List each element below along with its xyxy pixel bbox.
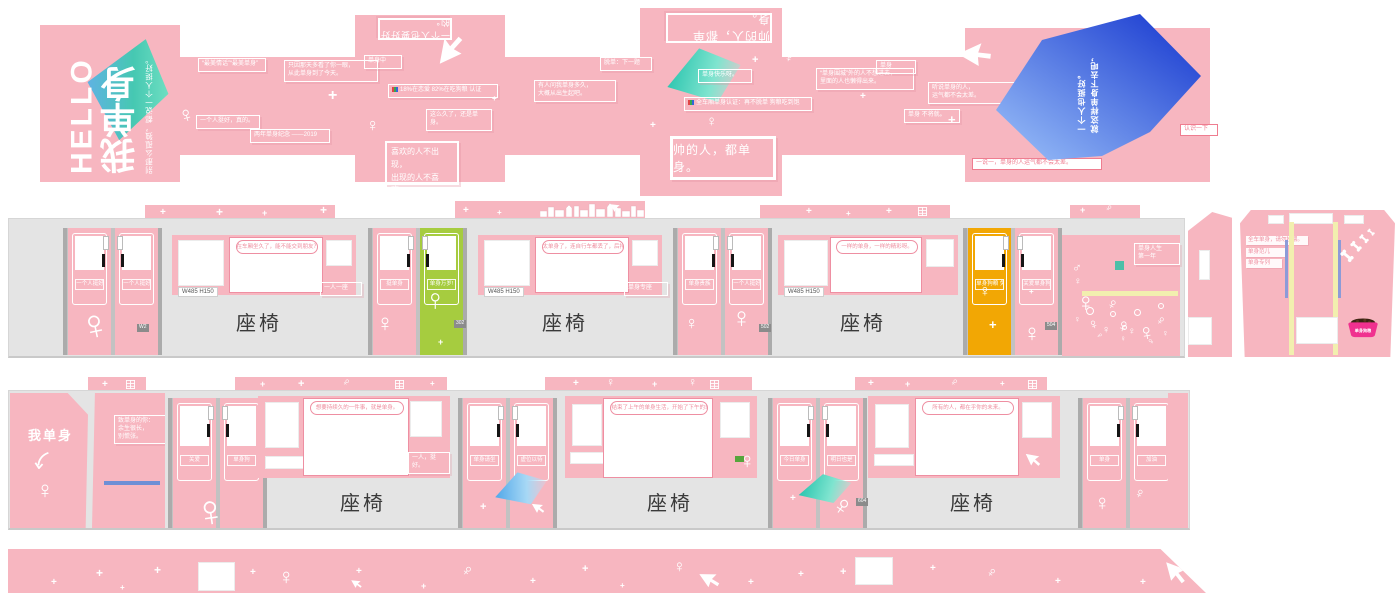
plus-icon: +: [250, 568, 256, 578]
cursor-icon: [1165, 556, 1195, 588]
plus-icon: +: [840, 567, 846, 578]
plus-icon: +: [620, 582, 625, 590]
plus-icon: +: [421, 582, 426, 591]
female-icon: ♀: [278, 566, 295, 588]
campaign-name: 我单身: [103, 32, 139, 174]
plus-icon: +: [582, 564, 588, 575]
plus-icon: +: [930, 564, 936, 574]
plus-icon: +: [51, 578, 57, 588]
female-icon: ♀: [457, 560, 478, 581]
cursor-icon: [351, 575, 367, 591]
plus-icon: +: [530, 577, 536, 587]
panel-rect: [198, 562, 235, 591]
plus-icon: +: [154, 564, 161, 576]
campaign-logo: 别那么孤独，都说一个人挺好。 我单身 HELLO: [50, 32, 172, 174]
female-icon: ♀: [673, 558, 686, 575]
plus-icon: +: [798, 570, 804, 580]
plus-icon: +: [1140, 578, 1146, 588]
female-icon: ♀: [982, 563, 1000, 582]
cursor-icon: [698, 563, 727, 592]
plus-icon: +: [96, 567, 103, 579]
plus-icon: +: [120, 584, 125, 592]
campaign-hello: HELLO: [68, 32, 98, 174]
plus-icon: +: [748, 578, 754, 588]
panel-rect: [855, 557, 893, 585]
plus-icon: +: [1055, 577, 1061, 587]
campaign-tagline: 别那么孤独，都说一个人挺好。: [144, 32, 155, 174]
bottom-strip: +++++♀++♀+++♀++++♀++: [8, 549, 1206, 593]
layout-canvas: 别那么孤独，都说一个人挺好。 我单身 HELLO “最美情话”“最美单身”只因那…: [0, 0, 1398, 600]
bottom-strip-band: +++++♀++♀+++♀++++♀++: [0, 0, 1398, 600]
